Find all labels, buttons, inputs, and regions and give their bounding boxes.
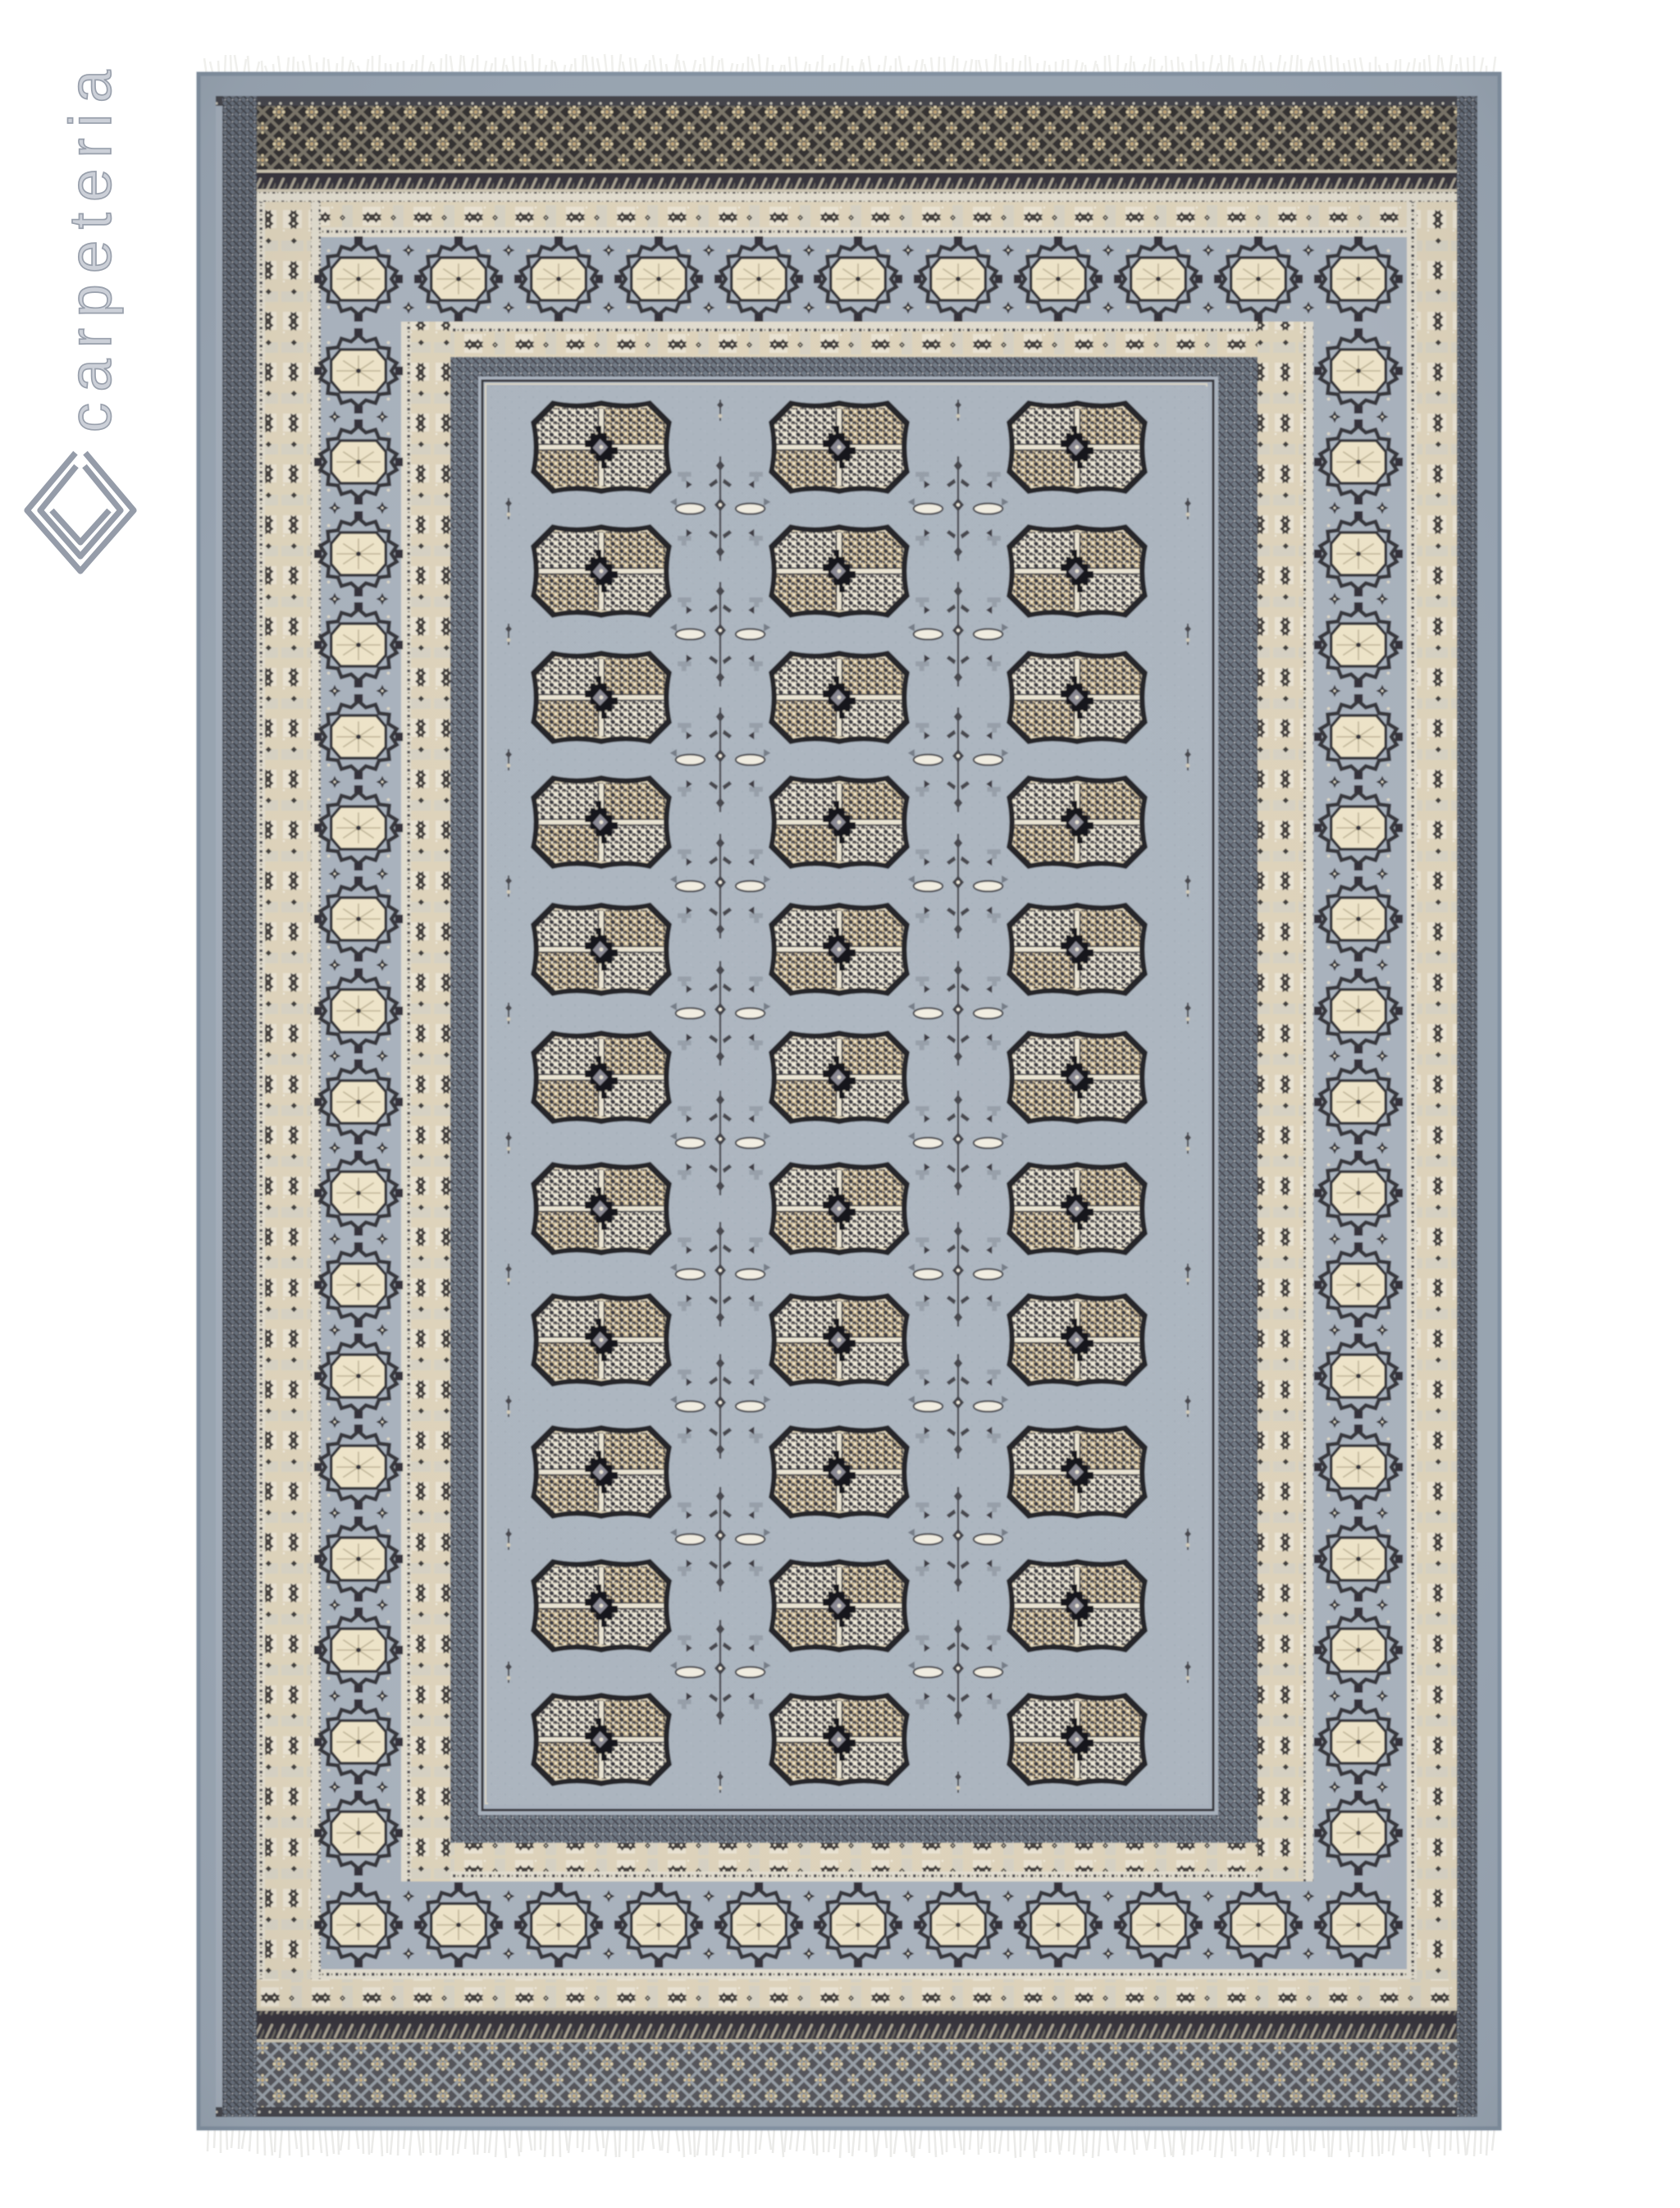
svg-text:carpeteria: carpeteria bbox=[58, 59, 124, 432]
